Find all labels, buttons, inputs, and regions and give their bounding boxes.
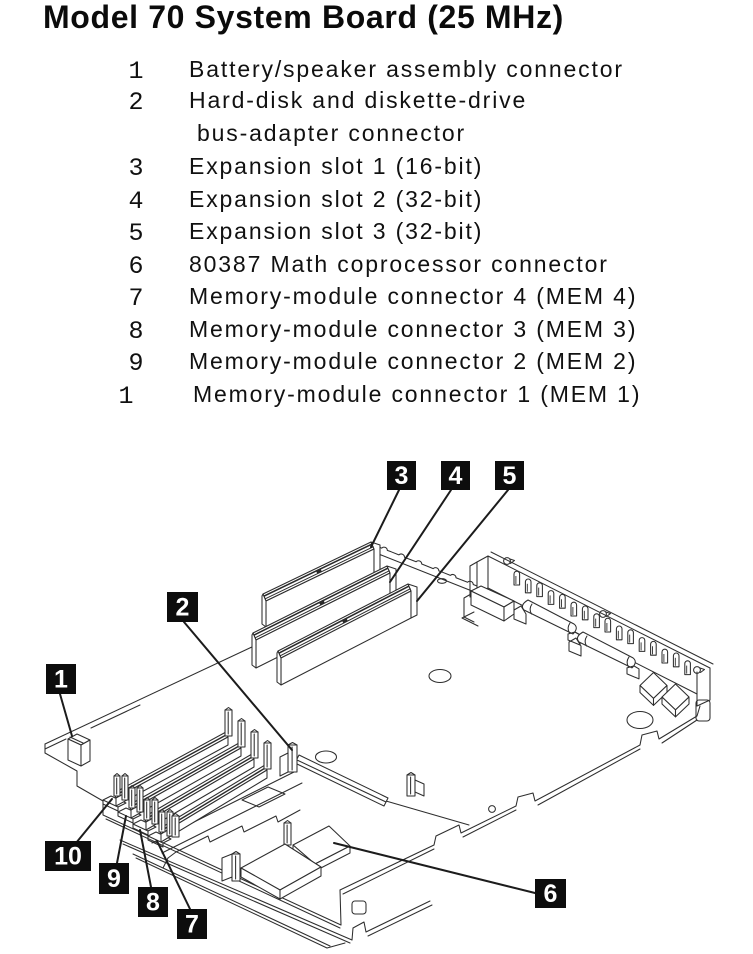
svg-text:10: 10 bbox=[54, 843, 82, 871]
svg-text:5: 5 bbox=[503, 462, 517, 490]
svg-text:7: 7 bbox=[185, 911, 199, 939]
svg-text:3: 3 bbox=[395, 462, 409, 490]
svg-text:9: 9 bbox=[107, 865, 121, 893]
svg-text:8: 8 bbox=[146, 889, 160, 917]
svg-text:4: 4 bbox=[449, 462, 463, 490]
svg-text:6: 6 bbox=[544, 880, 558, 908]
svg-text:1: 1 bbox=[54, 666, 68, 694]
svg-text:2: 2 bbox=[176, 594, 190, 622]
